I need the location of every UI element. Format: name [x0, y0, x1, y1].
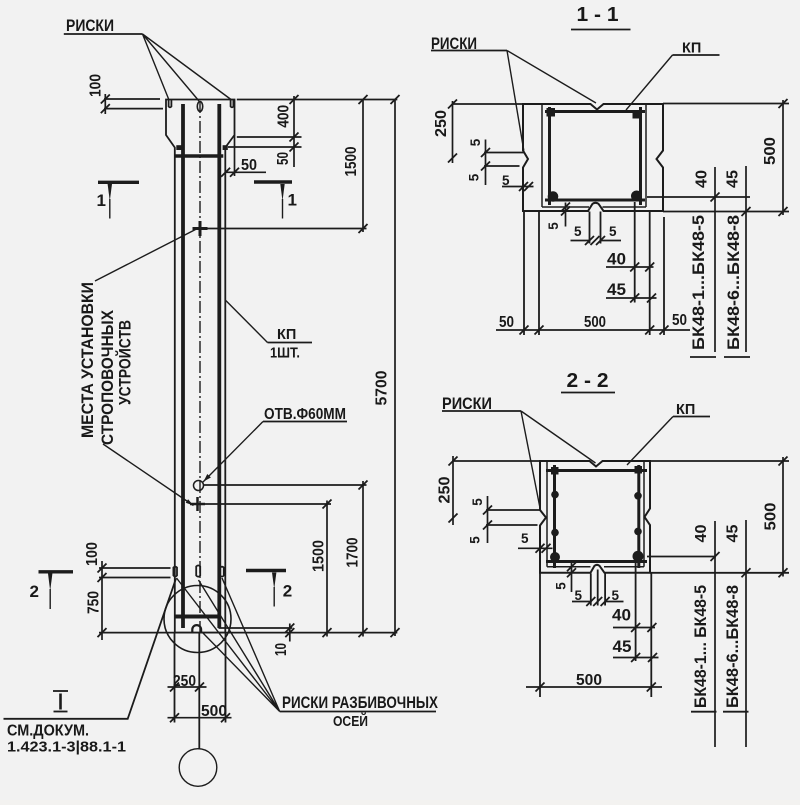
svg-text:5: 5 — [575, 588, 583, 603]
svg-text:1ШТ.: 1ШТ. — [270, 346, 300, 362]
svg-text:МЕСТА УСТАНОВКИ: МЕСТА УСТАНОВКИ — [79, 282, 97, 438]
svg-text:500: 500 — [201, 703, 227, 720]
svg-text:ОСЕЙ: ОСЕЙ — [333, 712, 368, 730]
svg-text:БК48-6...БК48-8: БК48-6...БК48-8 — [723, 585, 742, 708]
svg-text:КП: КП — [676, 402, 695, 418]
svg-text:100: 100 — [84, 542, 101, 566]
svg-text:5: 5 — [609, 224, 617, 239]
svg-text:50: 50 — [275, 152, 292, 165]
svg-text:РИСКИ РАЗБИВОЧНЫХ: РИСКИ РАЗБИВОЧНЫХ — [282, 694, 438, 712]
svg-text:2 - 2: 2 - 2 — [567, 370, 609, 392]
svg-text:5: 5 — [467, 173, 482, 181]
svg-text:50: 50 — [672, 312, 687, 329]
svg-text:50: 50 — [499, 314, 514, 331]
svg-text:5: 5 — [502, 173, 510, 188]
svg-text:250: 250 — [437, 476, 454, 503]
svg-text:БК48-1...БК48-5: БК48-1...БК48-5 — [689, 215, 708, 350]
svg-text:500: 500 — [763, 502, 780, 530]
svg-text:50: 50 — [241, 157, 257, 174]
svg-text:250: 250 — [433, 110, 450, 137]
svg-text:40: 40 — [693, 524, 710, 542]
svg-text:5: 5 — [470, 498, 485, 506]
svg-text:45: 45 — [725, 170, 742, 188]
svg-text:2: 2 — [283, 582, 292, 601]
svg-text:5: 5 — [546, 222, 561, 230]
svg-text:5: 5 — [521, 531, 529, 546]
svg-text:СТРОПОВОЧНЫХ: СТРОПОВОЧНЫХ — [99, 310, 117, 445]
svg-text:400: 400 — [276, 105, 293, 128]
svg-text:250: 250 — [173, 673, 196, 690]
svg-text:40: 40 — [612, 607, 631, 625]
svg-text:1.423.1-3|88.1-1: 1.423.1-3|88.1-1 — [7, 739, 126, 756]
svg-text:1700: 1700 — [345, 537, 362, 567]
svg-text:ОТВ.Ф60ММ: ОТВ.Ф60ММ — [264, 406, 346, 423]
svg-text:1: 1 — [288, 191, 297, 210]
svg-text:РИСКИ: РИСКИ — [66, 16, 114, 35]
svg-text:10: 10 — [273, 643, 290, 656]
svg-text:КП: КП — [277, 327, 296, 343]
svg-text:5: 5 — [574, 224, 582, 239]
svg-text:500: 500 — [584, 314, 606, 331]
svg-text:45: 45 — [613, 638, 632, 656]
svg-text:КП: КП — [682, 41, 701, 57]
svg-text:2: 2 — [30, 582, 39, 601]
svg-text:БК48-1... БК48-5: БК48-1... БК48-5 — [691, 585, 710, 708]
svg-text:СМ.ДОКУМ.: СМ.ДОКУМ. — [7, 723, 89, 740]
svg-text:УСТРОЙСТВ: УСТРОЙСТВ — [115, 320, 134, 405]
svg-text:5: 5 — [468, 536, 483, 544]
svg-text:БК48-6...БК48-8: БК48-6...БК48-8 — [724, 215, 743, 350]
svg-text:40: 40 — [607, 251, 626, 269]
svg-text:45: 45 — [607, 281, 626, 299]
svg-text:1 - 1: 1 - 1 — [577, 4, 619, 26]
svg-text:5: 5 — [554, 582, 569, 590]
svg-text:40: 40 — [694, 170, 711, 188]
svg-text:1500: 1500 — [343, 146, 360, 176]
svg-text:5: 5 — [612, 588, 620, 603]
svg-text:5700: 5700 — [374, 370, 391, 405]
svg-text:100: 100 — [88, 74, 105, 97]
svg-text:500: 500 — [762, 137, 779, 165]
svg-text:1: 1 — [97, 191, 106, 210]
svg-text:1500: 1500 — [311, 540, 328, 572]
svg-text:45: 45 — [725, 524, 742, 542]
svg-text:750: 750 — [86, 591, 103, 614]
svg-text:500: 500 — [576, 672, 602, 689]
svg-text:5: 5 — [468, 138, 483, 146]
